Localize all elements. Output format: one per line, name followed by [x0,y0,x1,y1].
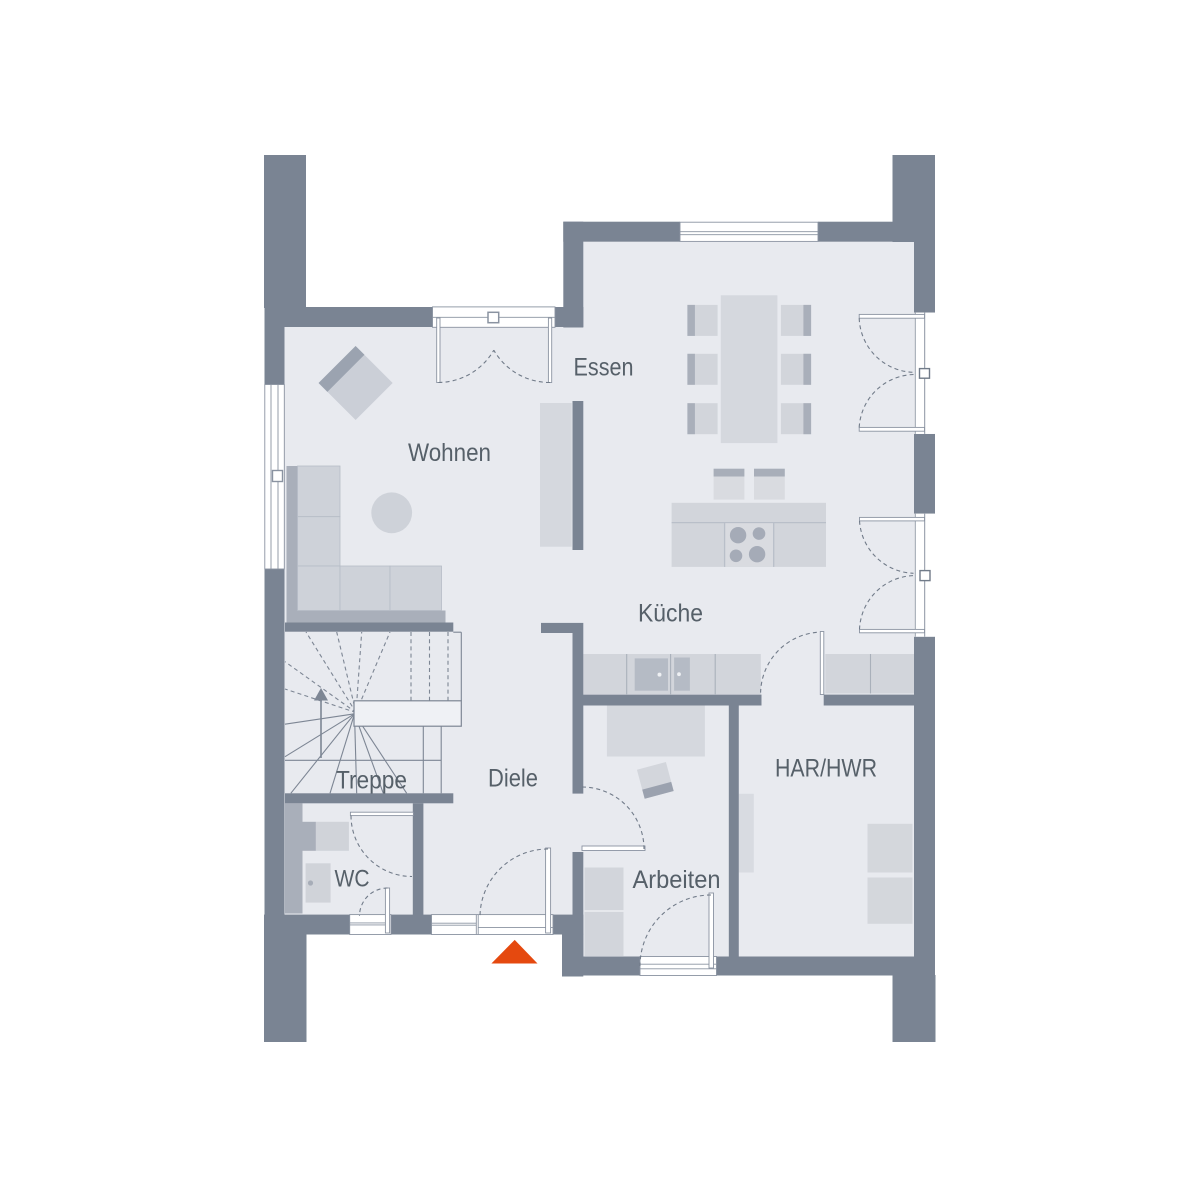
svg-text:Küche: Küche [638,600,703,628]
svg-text:HAR/HWR: HAR/HWR [775,755,877,783]
svg-text:Wohnen: Wohnen [408,439,491,467]
svg-text:Treppe: Treppe [336,767,407,795]
svg-text:WC: WC [335,866,370,893]
svg-text:Arbeiten: Arbeiten [633,866,721,894]
svg-text:Essen: Essen [574,354,634,382]
svg-text:Diele: Diele [488,765,538,793]
